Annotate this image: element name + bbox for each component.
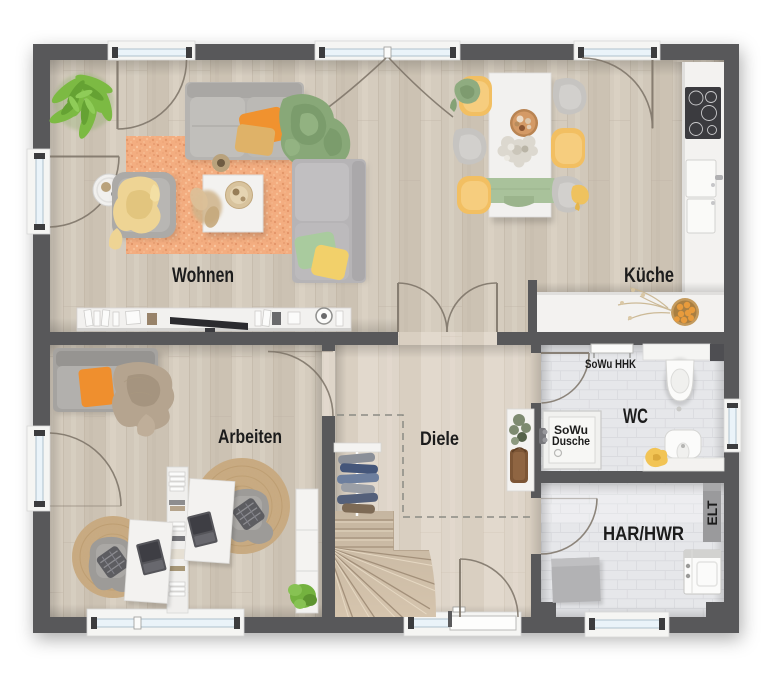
svg-text:Arbeiten: Arbeiten xyxy=(218,426,282,448)
svg-text:Dusche: Dusche xyxy=(552,436,590,448)
svg-text:SoWu HHK: SoWu HHK xyxy=(585,359,637,371)
svg-text:Küche: Küche xyxy=(624,264,674,287)
svg-text:HAR/HWR: HAR/HWR xyxy=(603,523,684,545)
svg-text:Wohnen: Wohnen xyxy=(172,264,234,287)
svg-text:WC: WC xyxy=(623,404,648,428)
svg-text:ELT: ELT xyxy=(705,500,720,526)
svg-text:Diele: Diele xyxy=(420,428,459,450)
